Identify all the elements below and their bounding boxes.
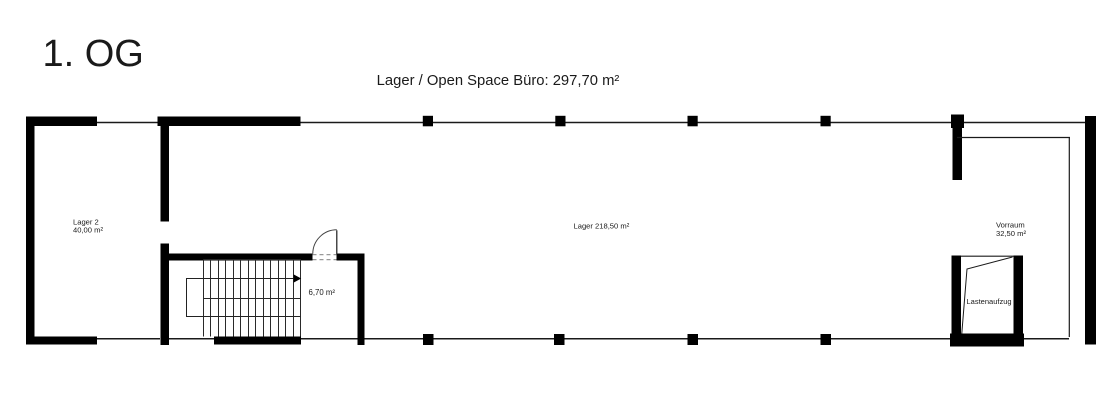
svg-text:6,70 m²: 6,70 m² (309, 288, 336, 297)
svg-text:32,50 m²: 32,50 m² (996, 229, 1026, 238)
svg-text:Lager / Open Space Büro: 297,7: Lager / Open Space Büro: 297,70 m² (377, 73, 620, 89)
svg-text:Lastenaufzug: Lastenaufzug (967, 297, 1012, 306)
svg-text:40,00 m²: 40,00 m² (73, 225, 103, 234)
svg-text:1. OG: 1. OG (43, 33, 144, 75)
svg-text:Lager 218,50 m²: Lager 218,50 m² (574, 221, 630, 230)
